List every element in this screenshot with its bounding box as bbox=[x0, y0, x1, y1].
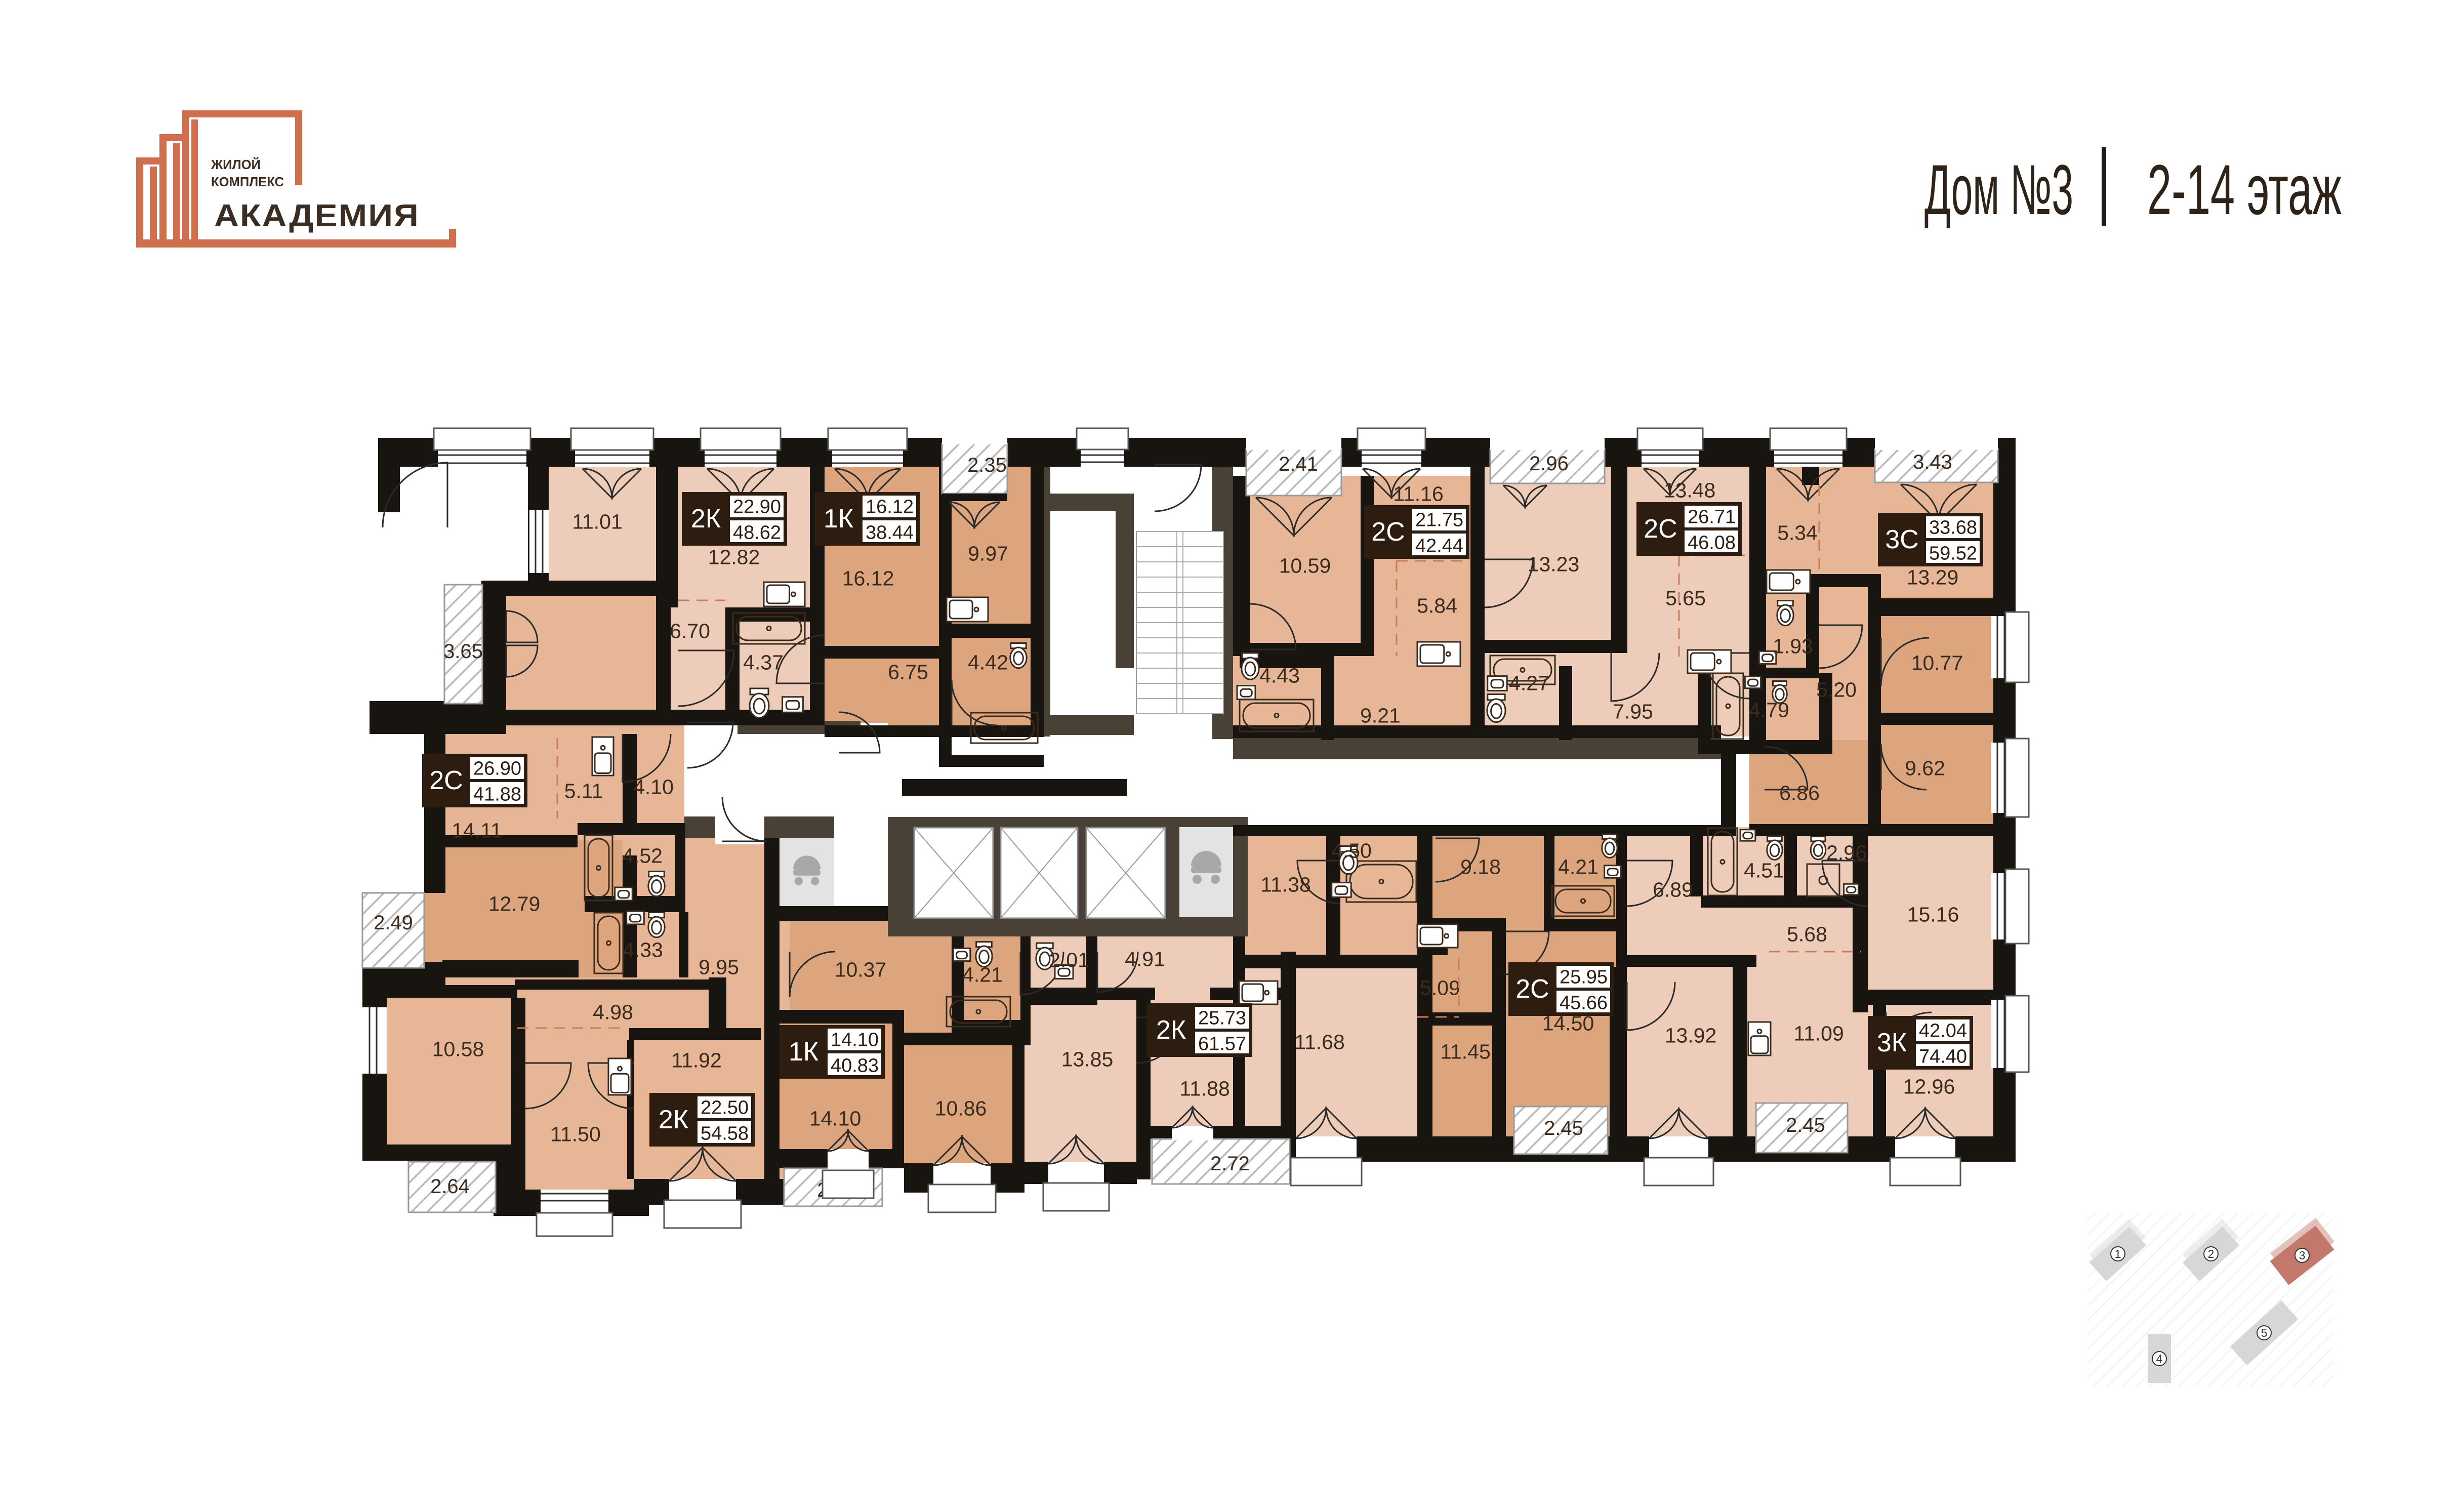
svg-text:61.57: 61.57 bbox=[1198, 1034, 1246, 1055]
svg-text:2.96: 2.96 bbox=[1826, 841, 1867, 864]
svg-text:1.93: 1.93 bbox=[1773, 634, 1813, 658]
svg-text:5.34: 5.34 bbox=[1777, 521, 1818, 544]
svg-text:4.33: 4.33 bbox=[623, 938, 663, 961]
svg-text:АКАДЕМИЯ: АКАДЕМИЯ bbox=[214, 198, 420, 233]
svg-text:2.45: 2.45 bbox=[1544, 1117, 1583, 1139]
svg-text:10.58: 10.58 bbox=[432, 1037, 484, 1060]
svg-text:2.01: 2.01 bbox=[1049, 948, 1089, 971]
svg-text:5: 5 bbox=[2261, 1326, 2268, 1339]
svg-text:4.98: 4.98 bbox=[593, 1000, 633, 1024]
svg-text:3.65: 3.65 bbox=[443, 640, 483, 663]
svg-text:3С: 3С bbox=[1885, 525, 1918, 554]
svg-text:11.50: 11.50 bbox=[550, 1122, 601, 1146]
svg-text:2.35: 2.35 bbox=[967, 454, 1007, 476]
svg-text:9.95: 9.95 bbox=[699, 955, 739, 978]
svg-text:9.97: 9.97 bbox=[968, 542, 1008, 565]
svg-text:2К: 2К bbox=[691, 504, 721, 534]
svg-text:11.88: 11.88 bbox=[1179, 1077, 1230, 1100]
svg-text:2С: 2С bbox=[1644, 514, 1677, 544]
svg-text:5.65: 5.65 bbox=[1665, 586, 1706, 609]
svg-text:14.10: 14.10 bbox=[809, 1107, 862, 1130]
svg-text:6.86: 6.86 bbox=[1779, 781, 1820, 804]
svg-text:33.68: 33.68 bbox=[1929, 517, 1977, 539]
svg-text:11.68: 11.68 bbox=[1294, 1030, 1345, 1053]
svg-text:10.37: 10.37 bbox=[835, 958, 887, 981]
svg-text:40.83: 40.83 bbox=[831, 1055, 879, 1077]
svg-text:2.45: 2.45 bbox=[1786, 1114, 1825, 1136]
svg-text:26.90: 26.90 bbox=[473, 758, 521, 780]
svg-text:6.75: 6.75 bbox=[888, 660, 928, 683]
svg-text:11.01: 11.01 bbox=[572, 510, 623, 533]
svg-text:2.41: 2.41 bbox=[1279, 453, 1318, 475]
svg-text:3К: 3К bbox=[1877, 1028, 1907, 1057]
svg-text:25.73: 25.73 bbox=[1198, 1008, 1246, 1029]
svg-text:42.04: 42.04 bbox=[1919, 1020, 1967, 1042]
svg-text:13.23: 13.23 bbox=[1528, 552, 1580, 576]
svg-text:4.51: 4.51 bbox=[1744, 859, 1784, 882]
svg-text:15.16: 15.16 bbox=[1907, 903, 1959, 926]
svg-text:5.11: 5.11 bbox=[564, 779, 603, 802]
svg-text:26.71: 26.71 bbox=[1688, 507, 1736, 528]
svg-text:41.88: 41.88 bbox=[473, 784, 521, 805]
svg-text:1К: 1К bbox=[824, 504, 853, 534]
svg-text:4.50: 4.50 bbox=[1331, 839, 1372, 862]
svg-text:13.29: 13.29 bbox=[1907, 565, 1959, 589]
svg-text:4.91: 4.91 bbox=[1125, 947, 1165, 970]
svg-text:12.96: 12.96 bbox=[1903, 1075, 1955, 1098]
svg-text:2С: 2С bbox=[1515, 974, 1549, 1004]
svg-text:6.89: 6.89 bbox=[1653, 878, 1693, 901]
svg-text:2.96: 2.96 bbox=[1529, 453, 1569, 475]
svg-text:4.37: 4.37 bbox=[743, 650, 784, 674]
svg-text:1: 1 bbox=[2115, 1247, 2121, 1260]
svg-text:13.85: 13.85 bbox=[1061, 1047, 1114, 1071]
svg-text:46.08: 46.08 bbox=[1688, 533, 1736, 554]
svg-text:5.20: 5.20 bbox=[1816, 678, 1857, 701]
svg-text:14.10: 14.10 bbox=[831, 1030, 879, 1051]
svg-text:11.45: 11.45 bbox=[1440, 1040, 1491, 1063]
svg-text:12.79: 12.79 bbox=[488, 892, 541, 915]
svg-text:2-14 этаж: 2-14 этаж bbox=[2147, 150, 2342, 229]
svg-text:7.95: 7.95 bbox=[1613, 700, 1653, 723]
svg-text:3.43: 3.43 bbox=[1913, 451, 1952, 473]
svg-text:10.77: 10.77 bbox=[1911, 651, 1963, 674]
svg-text:2С: 2С bbox=[1371, 517, 1405, 547]
svg-text:4.79: 4.79 bbox=[1749, 698, 1789, 721]
svg-text:22.90: 22.90 bbox=[733, 497, 781, 518]
svg-text:4.10: 4.10 bbox=[633, 775, 674, 798]
svg-text:13.48: 13.48 bbox=[1664, 478, 1716, 502]
svg-text:12.82: 12.82 bbox=[708, 545, 760, 568]
svg-text:9.21: 9.21 bbox=[1360, 704, 1401, 727]
svg-text:42.44: 42.44 bbox=[1415, 536, 1463, 557]
svg-text:11.92: 11.92 bbox=[671, 1048, 722, 1072]
svg-text:2: 2 bbox=[2208, 1247, 2215, 1260]
svg-text:2К: 2К bbox=[659, 1105, 688, 1134]
svg-text:59.52: 59.52 bbox=[1929, 543, 1977, 564]
svg-text:Дом №3: Дом №3 bbox=[1924, 150, 2073, 229]
svg-text:54.58: 54.58 bbox=[701, 1123, 749, 1145]
svg-text:2К: 2К bbox=[1156, 1015, 1186, 1045]
svg-text:ЖИЛОЙ: ЖИЛОЙ bbox=[211, 157, 261, 172]
svg-text:38.44: 38.44 bbox=[866, 522, 914, 544]
svg-text:25.95: 25.95 bbox=[1560, 967, 1608, 988]
svg-text:4.27: 4.27 bbox=[1509, 671, 1549, 694]
svg-text:45.66: 45.66 bbox=[1560, 993, 1608, 1014]
svg-text:48.62: 48.62 bbox=[733, 522, 781, 544]
svg-text:14.11: 14.11 bbox=[452, 819, 502, 842]
svg-text:16.12: 16.12 bbox=[842, 566, 894, 590]
svg-text:4.42: 4.42 bbox=[968, 650, 1008, 674]
svg-text:10.86: 10.86 bbox=[935, 1096, 987, 1120]
svg-text:74.40: 74.40 bbox=[1919, 1046, 1967, 1068]
svg-text:21.75: 21.75 bbox=[1415, 510, 1463, 531]
svg-text:5.68: 5.68 bbox=[1787, 922, 1827, 946]
svg-text:11.16: 11.16 bbox=[1393, 482, 1444, 505]
svg-text:6.70: 6.70 bbox=[670, 619, 710, 642]
svg-text:5.09: 5.09 bbox=[1420, 976, 1460, 999]
svg-text:4.21: 4.21 bbox=[962, 963, 1003, 986]
svg-text:КОМПЛЕКС: КОМПЛЕКС bbox=[211, 174, 284, 189]
svg-text:4.21: 4.21 bbox=[1558, 855, 1599, 878]
svg-text:9.18: 9.18 bbox=[1460, 855, 1501, 878]
svg-text:16.12: 16.12 bbox=[866, 497, 914, 518]
svg-text:2.72: 2.72 bbox=[1210, 1153, 1250, 1175]
svg-text:11.09: 11.09 bbox=[1793, 1021, 1844, 1045]
svg-text:5.84: 5.84 bbox=[1417, 594, 1457, 617]
svg-text:10.59: 10.59 bbox=[1279, 554, 1331, 577]
svg-text:22.50: 22.50 bbox=[701, 1097, 749, 1119]
svg-text:2.49: 2.49 bbox=[374, 912, 413, 934]
svg-text:4.52: 4.52 bbox=[622, 844, 663, 867]
svg-text:3: 3 bbox=[2299, 1249, 2306, 1262]
svg-text:1К: 1К bbox=[789, 1037, 818, 1067]
svg-text:4.43: 4.43 bbox=[1259, 664, 1300, 687]
svg-text:2.64: 2.64 bbox=[430, 1175, 470, 1198]
svg-text:2С: 2С bbox=[429, 766, 463, 795]
svg-text:9.62: 9.62 bbox=[1905, 756, 1945, 780]
svg-text:13.92: 13.92 bbox=[1665, 1024, 1717, 1047]
svg-text:4: 4 bbox=[2156, 1352, 2163, 1365]
svg-text:11.38: 11.38 bbox=[1260, 873, 1311, 896]
